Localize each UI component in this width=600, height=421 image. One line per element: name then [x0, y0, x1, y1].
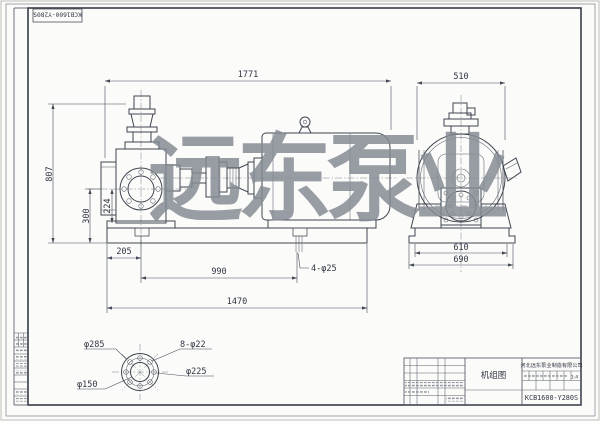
drawing-sheet: KCB1600-Y280S	[0, 0, 600, 421]
dim-anchor-holes: 4-φ25	[311, 264, 337, 274]
watermark-text: 远东泵业	[148, 125, 507, 235]
corner-label: KCB1600-Y280S	[33, 11, 82, 18]
dim-anchor-spacing: 990	[211, 267, 226, 277]
dim-overall-length: 1771	[238, 70, 258, 80]
dim-bolt-circle: φ225	[186, 367, 206, 377]
dim-flange-od: φ285	[84, 340, 104, 350]
dim-port-center-height: 224	[103, 198, 113, 213]
dim-end-overall-width: 510	[453, 72, 468, 82]
drawing-scale: 1:4	[571, 375, 578, 381]
dim-base-length: 1470	[227, 297, 247, 307]
dim-base-top-width: 610	[453, 243, 468, 253]
dim-flange-bore: φ150	[77, 380, 97, 390]
dim-flange-holes: 8-φ22	[180, 340, 206, 350]
drawing-number: KCB1600-Y280S	[525, 394, 578, 402]
drawing-title: 机组图	[481, 370, 507, 381]
dim-overall-height: 807	[45, 166, 55, 181]
company-name: 河北远东泵业制造有限公司	[520, 361, 582, 369]
dim-inlet-center-height: 300	[82, 208, 92, 223]
dim-anchor-offset: 205	[116, 247, 131, 257]
dim-base-bottom-width: 690	[453, 255, 468, 265]
